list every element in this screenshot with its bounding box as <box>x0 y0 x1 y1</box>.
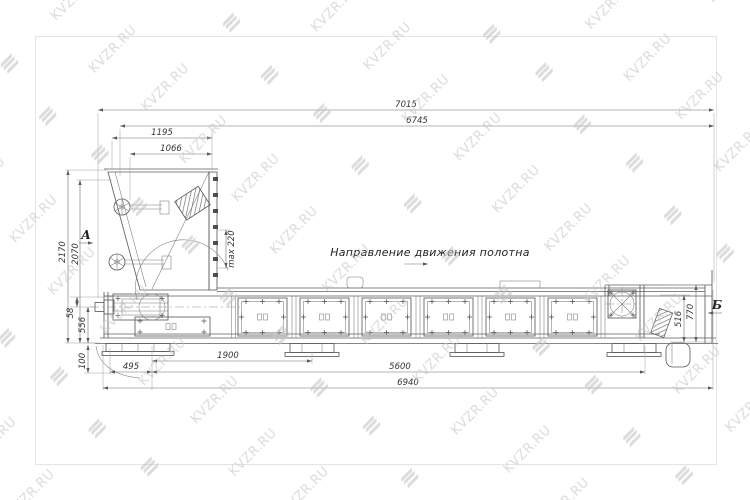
view-label-b: Б <box>711 298 722 312</box>
dim-shaft-offset: 58 <box>66 307 76 318</box>
dim-base-depth: 100 <box>78 353 88 369</box>
dim-body-length: 6745 <box>406 116 428 126</box>
leg-2 <box>450 344 504 357</box>
belt-direction-label: Направление движения полотна <box>330 246 530 259</box>
panel-4 <box>424 298 473 336</box>
dim-overall-height: 2170 <box>58 241 68 263</box>
dim-shaft-height: 556 <box>78 316 88 333</box>
dim-base-length: 6940 <box>397 378 419 388</box>
panel-5 <box>486 298 535 336</box>
dim-overall-length: 7015 <box>395 100 417 110</box>
end-roller <box>666 343 690 367</box>
dim-head-width-outer: 1195 <box>151 128 173 138</box>
handwheel-lower <box>109 254 125 270</box>
guard-arc <box>135 240 228 300</box>
motor-block <box>175 186 210 220</box>
dim-body-height: 2070 <box>71 243 81 265</box>
drawing-canvas: 7015 6745 1195 1066 2170 2070 58 556 100… <box>0 0 750 500</box>
dim-right-height-inner: 516 <box>674 310 684 327</box>
head-unit <box>104 169 228 300</box>
panel-6 <box>548 298 597 336</box>
panel-3 <box>362 298 411 336</box>
view-label-a: А <box>80 228 91 242</box>
panel-1 <box>238 298 287 336</box>
dim-right-height-outer: 770 <box>686 304 696 320</box>
top-sensor <box>347 277 363 288</box>
end-strut <box>651 308 673 337</box>
top-cover <box>500 281 540 288</box>
panel-2 <box>300 298 349 336</box>
dim-head-width-inner: 1066 <box>160 144 182 154</box>
technical-drawing: 7015 6745 1195 1066 2170 2070 58 556 100… <box>0 0 750 500</box>
leg-3 <box>607 344 661 357</box>
dim-frame-length: 5600 <box>389 362 411 372</box>
dim-left-offset: 495 <box>123 362 139 372</box>
drive-section <box>90 294 243 378</box>
dim-max-gap: max 220 <box>227 230 237 267</box>
dim-support-span: 1900 <box>217 351 239 361</box>
supports <box>102 344 661 357</box>
fan-unit <box>605 287 639 321</box>
handwheel-upper <box>114 199 130 215</box>
